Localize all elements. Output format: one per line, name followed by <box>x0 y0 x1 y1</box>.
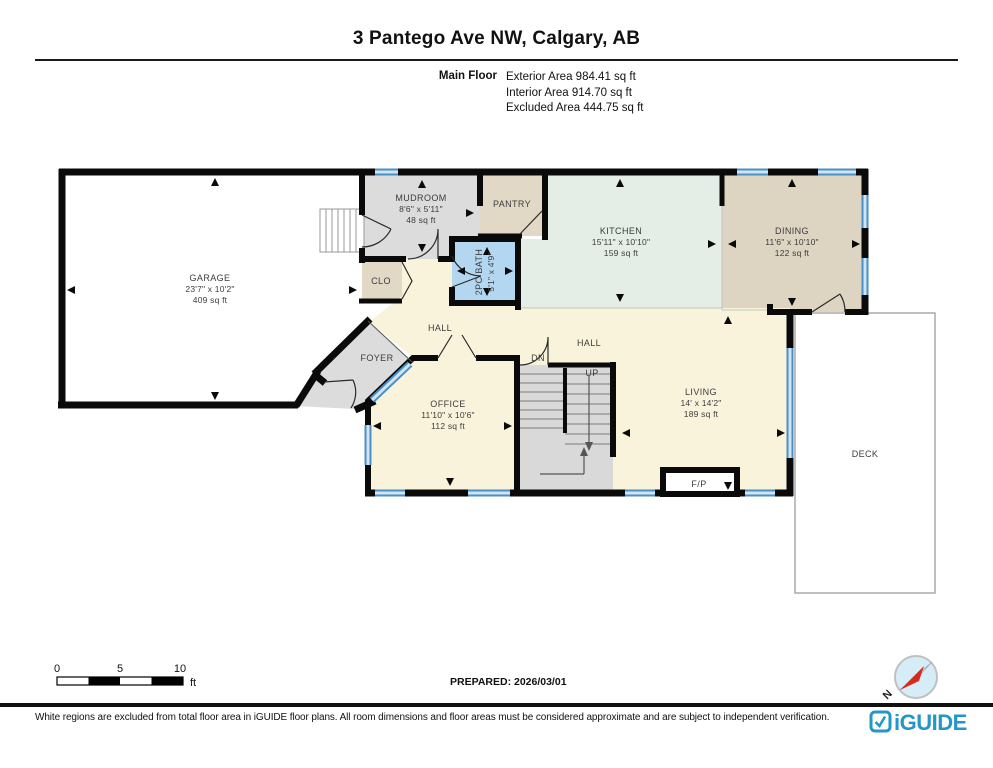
foyer-label: FOYER <box>360 353 393 363</box>
scale-10: 10 <box>174 663 186 675</box>
living-area: 189 sq ft <box>684 409 719 419</box>
office-area: 112 sq ft <box>431 421 465 431</box>
garage-area: 409 sq ft <box>193 295 228 305</box>
scale-unit: ft <box>190 677 196 689</box>
mudroom-label: MUDROOM <box>395 193 446 203</box>
scale-0: 0 <box>54 663 60 675</box>
logo-wordmark: iGUIDE <box>894 710 967 735</box>
iguide-logo: iGUIDE <box>868 706 980 741</box>
dining-dims: 11'6" x 10'10" <box>765 237 819 247</box>
mudroom-dims: 8'6" x 5'11" <box>399 204 443 214</box>
fireplace-label: F/P <box>691 479 706 489</box>
stairs-down-label: DN <box>531 353 545 363</box>
logo-mark-icon <box>871 712 890 731</box>
floor-plan-page: 3 Pantego Ave NW, Calgary, AB Main Floor… <box>0 0 993 768</box>
office-label: OFFICE <box>430 399 465 409</box>
kitchen-area: 159 sq ft <box>604 248 639 258</box>
bath-dims: 5'1" x 4'9" <box>486 252 496 291</box>
hall-main-label: HALL <box>577 338 601 348</box>
stairs-up-label: UP <box>585 368 598 378</box>
dining-label: DINING <box>775 226 809 236</box>
hall-upper-label: HALL <box>428 323 452 333</box>
living-dims: 14' x 14'2" <box>680 398 721 408</box>
garage-dims: 23'7" x 10'2" <box>185 284 234 294</box>
garage-label: GARAGE <box>190 273 231 283</box>
fireplace: F/P <box>663 470 737 494</box>
prepared-date: PREPARED: 2026/03/01 <box>450 676 567 688</box>
logo-check-icon <box>876 717 886 727</box>
deck-label: DECK <box>852 449 879 459</box>
compass: N <box>881 656 937 702</box>
pantry-label: PANTRY <box>493 199 531 209</box>
iguide-logo-svg: iGUIDE <box>868 706 980 736</box>
compass-north-label: N <box>881 688 895 702</box>
office-dims: 11'10" x 10'6" <box>421 410 475 420</box>
mudroom-area: 48 sq ft <box>406 215 436 225</box>
floor-plan-drawing: F/P GARAGE 23'7" x 10'2" 409 sq ft MUD <box>0 0 993 768</box>
kitchen-label: KITCHEN <box>600 226 642 236</box>
bath-label: 2PC BATH <box>474 249 484 296</box>
scale-5: 5 <box>117 663 123 675</box>
footer-divider <box>0 703 993 707</box>
footer-disclaimer: White regions are excluded from total fl… <box>35 712 865 723</box>
scale-bar: 0 5 10 ft <box>54 663 196 689</box>
kitchen-dims: 15'11" x 10'10" <box>592 237 650 247</box>
garage-entry-steps <box>320 209 364 252</box>
dining-area: 122 sq ft <box>775 248 810 258</box>
living-label: LIVING <box>685 387 717 397</box>
closet-label: CLO <box>371 276 391 286</box>
